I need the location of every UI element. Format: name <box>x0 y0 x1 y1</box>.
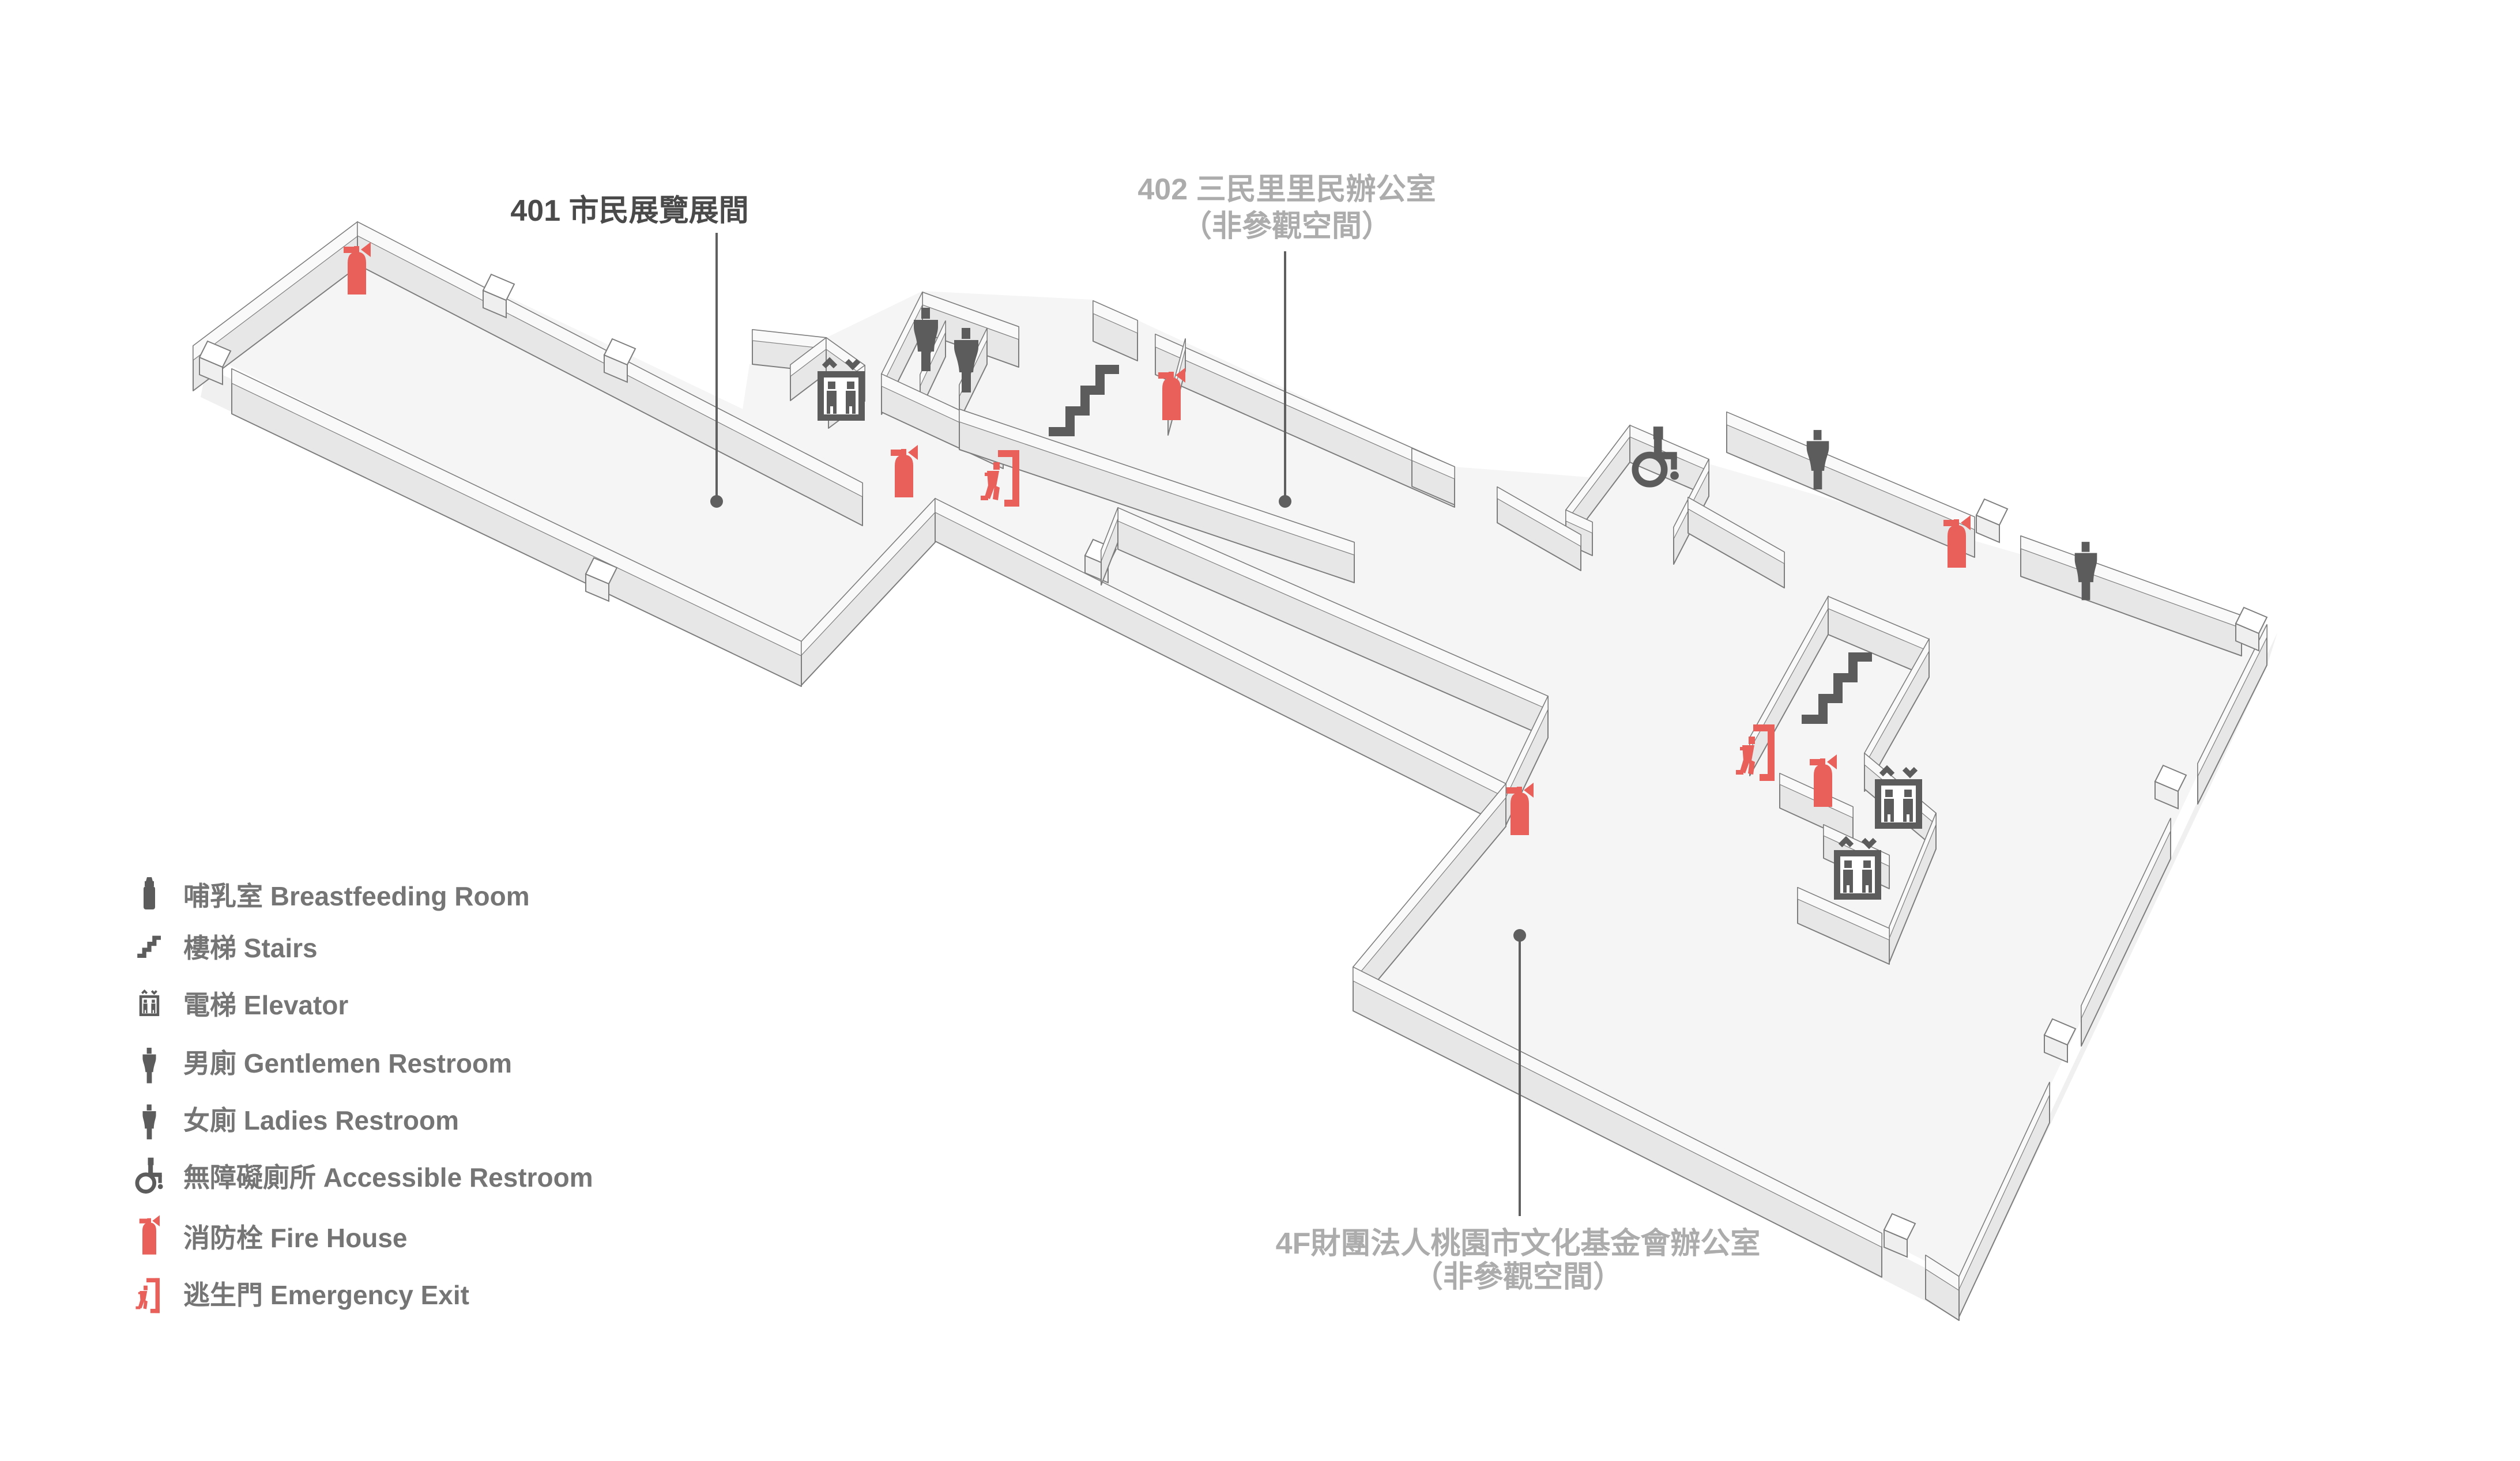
svg-text:402 三民里里民辦公室: 402 三民里里民辦公室 <box>1137 173 1436 206</box>
svg-text:（非參觀空間）: （非參觀空間） <box>1182 210 1392 243</box>
svg-text:女廁 Ladies Restroom: 女廁 Ladies Restroom <box>183 1105 459 1135</box>
svg-text:哺乳室 Breastfeeding Room: 哺乳室 Breastfeeding Room <box>183 881 530 911</box>
svg-text:無障礙廁所 Accessible Restroom: 無障礙廁所 Accessible Restroom <box>183 1162 593 1192</box>
svg-text:消防栓 Fire House: 消防栓 Fire House <box>183 1223 408 1253</box>
svg-text:電梯 Elevator: 電梯 Elevator <box>183 990 348 1020</box>
svg-text:（非參觀空間）: （非參觀空間） <box>1413 1260 1623 1294</box>
svg-text:401 市民展覽展間: 401 市民展覽展間 <box>510 194 748 228</box>
svg-text:逃生門 Emergency Exit: 逃生門 Emergency Exit <box>183 1280 469 1310</box>
svg-text:樓梯 Stairs: 樓梯 Stairs <box>183 933 318 963</box>
svg-text:男廁 Gentlemen Restroom: 男廁 Gentlemen Restroom <box>183 1048 512 1078</box>
svg-text:4F財團法人桃園市文化基金會辦公室: 4F財團法人桃園市文化基金會辦公室 <box>1276 1227 1761 1260</box>
